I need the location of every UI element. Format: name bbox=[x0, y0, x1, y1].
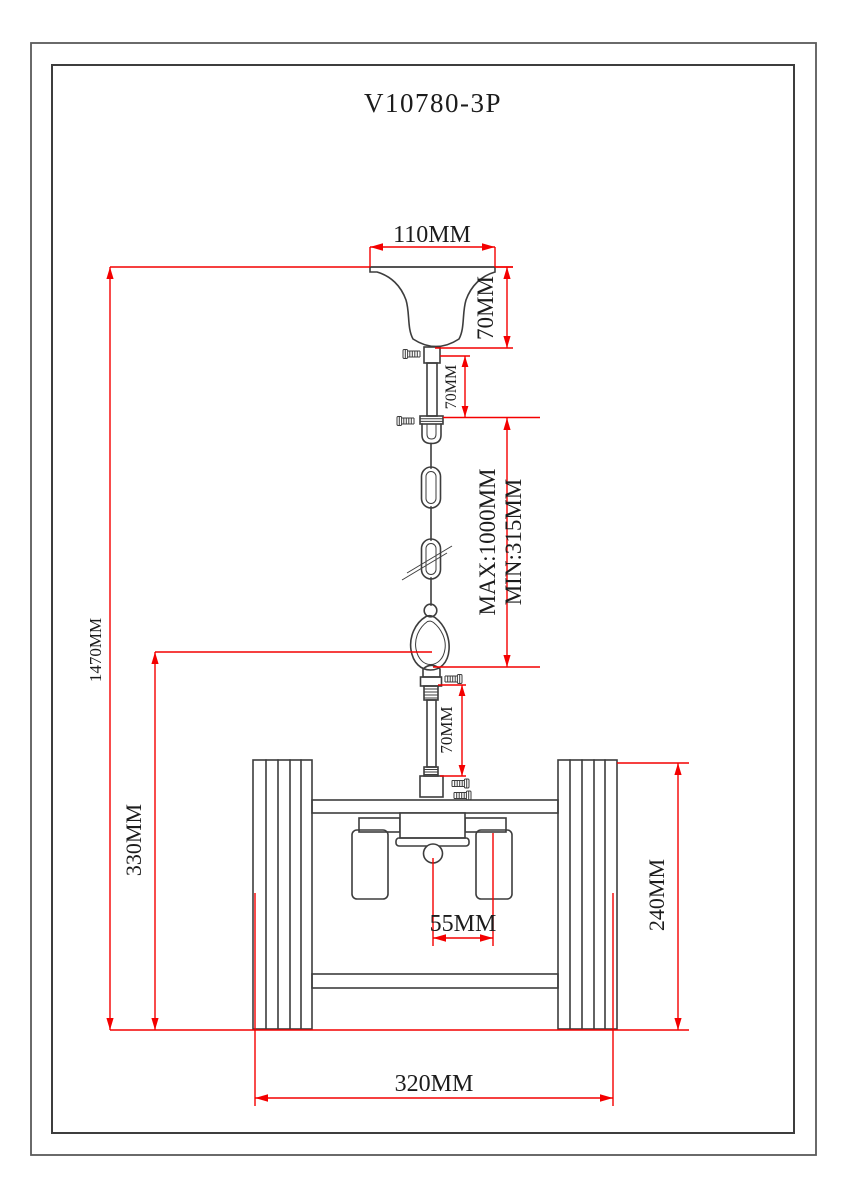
screw-icon bbox=[403, 350, 420, 359]
dim-upper-rod: 70MM bbox=[440, 356, 470, 417]
dim-label-body-width: 320MM bbox=[395, 1071, 474, 1097]
dim-label-body-drop: 330MM bbox=[121, 804, 146, 876]
dim-label-lower-rod: 70MM bbox=[437, 706, 456, 753]
hanging-chain bbox=[402, 444, 452, 606]
frame-bottom-bar bbox=[312, 974, 558, 988]
upper-clevis bbox=[422, 424, 441, 444]
dim-side-panel: 240MM bbox=[617, 763, 689, 1030]
chain-break-mark bbox=[402, 546, 452, 580]
screw-icon bbox=[454, 791, 471, 800]
lamp-hub bbox=[359, 813, 506, 863]
dim-label-overall-height: 1470MM bbox=[86, 618, 105, 682]
dim-lower-rod: 70MM bbox=[437, 685, 466, 776]
hub-body bbox=[400, 813, 465, 838]
chain-link bbox=[422, 467, 441, 508]
dim-label-canopy-height: 70MM bbox=[473, 276, 498, 340]
lamp-frame bbox=[253, 760, 617, 1029]
canopy-neck bbox=[424, 347, 440, 363]
left-side-panel bbox=[253, 760, 312, 1029]
drawing-title: V10780-3P bbox=[364, 88, 502, 118]
right-shade bbox=[476, 830, 512, 899]
upper-thread-connector bbox=[420, 416, 443, 424]
left-shade bbox=[352, 830, 388, 899]
dim-chain-length: MAX:1000MM MIN:315MM bbox=[433, 418, 540, 668]
lower-rod bbox=[427, 700, 436, 767]
dim-canopy-width: 110MM bbox=[370, 222, 495, 267]
dim-label-canopy-width: 110MM bbox=[393, 222, 471, 248]
stem-mount-block bbox=[420, 776, 443, 797]
dim-label-chain-max: MAX:1000MM bbox=[475, 469, 500, 616]
hook-eye bbox=[424, 604, 437, 617]
screw-icon bbox=[445, 675, 462, 684]
dim-label-shade-offset: 55MM bbox=[430, 911, 497, 937]
chain-hook bbox=[411, 604, 450, 670]
upper-rod bbox=[427, 363, 437, 416]
hook-body bbox=[411, 616, 450, 670]
screw-icon bbox=[452, 779, 469, 788]
right-side-panel bbox=[558, 760, 617, 1029]
frame-top-bar bbox=[312, 800, 558, 813]
technical-drawing-canvas: V10780-3P bbox=[0, 0, 848, 1200]
screw-icon bbox=[397, 417, 414, 426]
dim-label-side-panel: 240MM bbox=[644, 859, 669, 931]
dim-label-upper-rod: 70MM bbox=[443, 365, 460, 409]
upper-stem bbox=[420, 363, 443, 444]
dim-label-chain-min: MIN:315MM bbox=[501, 479, 526, 606]
